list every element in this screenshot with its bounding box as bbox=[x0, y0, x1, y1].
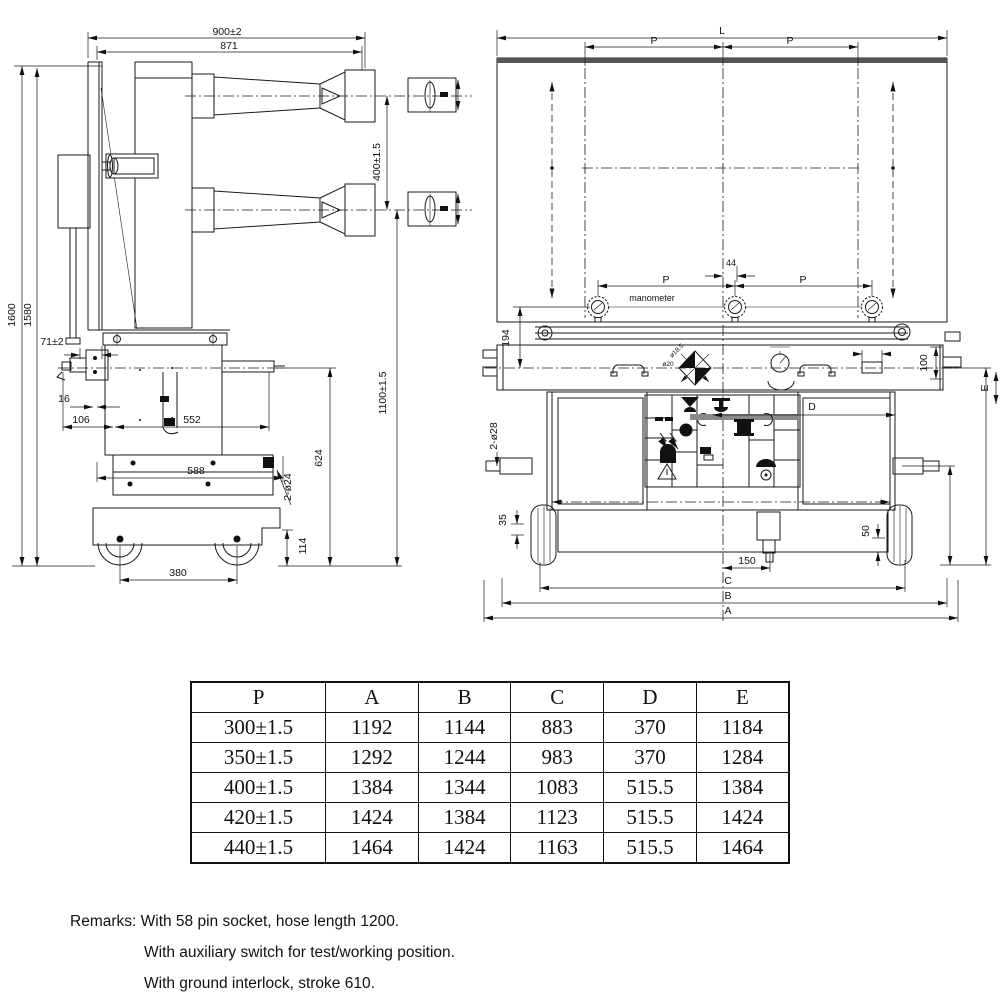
dimension-table: P A B C D E 300±1.5 1192 1144 883 370 11… bbox=[190, 681, 790, 864]
dim-1100: 1100±1.5 bbox=[377, 371, 389, 414]
table-cell: 1083 bbox=[511, 773, 604, 803]
table-cell: 1384 bbox=[326, 773, 419, 803]
panel-front-view bbox=[497, 30, 947, 368]
table-cell: 350±1.5 bbox=[191, 743, 326, 773]
table-cell: 1163 bbox=[511, 833, 604, 864]
dim-D: D bbox=[808, 401, 816, 413]
dim-44: 44 bbox=[726, 258, 736, 268]
engineering-drawing-page: { "drawing": { "side_view": { "d900": "9… bbox=[0, 0, 1000, 1000]
dim-150: 150 bbox=[738, 555, 756, 567]
table-header-row: P A B C D E bbox=[191, 682, 789, 713]
table-cell: 1384 bbox=[696, 773, 789, 803]
dim-35: 35 bbox=[497, 514, 509, 526]
table-cell: 420±1.5 bbox=[191, 803, 326, 833]
dim-380: 380 bbox=[169, 567, 187, 579]
table-cell: 1464 bbox=[326, 833, 419, 864]
dim-106: 106 bbox=[72, 414, 90, 426]
dim-P3: P bbox=[662, 274, 669, 286]
dim-71: 71±2 bbox=[40, 336, 63, 348]
table-cell: 1384 bbox=[418, 803, 511, 833]
dim-50: 50 bbox=[860, 525, 872, 537]
dim-400: 400±1.5 bbox=[371, 143, 383, 181]
dim-P1: P bbox=[650, 35, 657, 47]
table-row: 440±1.5 1464 1424 1163 515.5 1464 bbox=[191, 833, 789, 864]
table-row: 300±1.5 1192 1144 883 370 1184 bbox=[191, 713, 789, 743]
table-cell: 983 bbox=[511, 743, 604, 773]
table-cell: 515.5 bbox=[604, 833, 697, 864]
table-header-cell: E bbox=[696, 682, 789, 713]
table-cell: 1244 bbox=[418, 743, 511, 773]
control-panel bbox=[645, 395, 800, 487]
dim-o20: ø20 bbox=[662, 361, 674, 368]
dim-B: B bbox=[724, 590, 731, 602]
table-cell: 370 bbox=[604, 743, 697, 773]
dim-100: 100 bbox=[918, 354, 930, 372]
table-cell: 370 bbox=[604, 713, 697, 743]
table-cell: 1284 bbox=[696, 743, 789, 773]
terminal-detail-bottom bbox=[408, 192, 458, 226]
table-cell: 883 bbox=[511, 713, 604, 743]
table-cell: 1344 bbox=[418, 773, 511, 803]
table-cell: 440±1.5 bbox=[191, 833, 326, 864]
dim-624: 624 bbox=[313, 449, 325, 467]
side-view bbox=[12, 32, 472, 584]
breaker-technical-drawing: 900±2 871 1600 1580 71±2 400±1.5 1100±1.… bbox=[0, 0, 1000, 660]
dim-P4: P bbox=[799, 274, 806, 286]
target-symbol bbox=[679, 351, 711, 385]
remarks-block: Remarks: With 58 pin socket, hose length… bbox=[70, 906, 455, 999]
table-cell: 1192 bbox=[326, 713, 419, 743]
remarks-line-2: With auxiliary switch for test/working p… bbox=[144, 937, 455, 968]
table-cell: 1292 bbox=[326, 743, 419, 773]
table-cell: 1424 bbox=[418, 833, 511, 864]
table-cell: 1424 bbox=[696, 803, 789, 833]
dim-900: 900±2 bbox=[212, 26, 241, 38]
table-cell: 1144 bbox=[418, 713, 511, 743]
dim-194: 194 bbox=[500, 329, 512, 347]
dim-1580: 1580 bbox=[22, 303, 34, 327]
dim-1600: 1600 bbox=[6, 303, 18, 327]
table-row: 350±1.5 1292 1244 983 370 1284 bbox=[191, 743, 789, 773]
table-cell: 400±1.5 bbox=[191, 773, 326, 803]
side-view-labels: 900±2 871 1600 1580 71±2 400±1.5 1100±1.… bbox=[6, 26, 389, 579]
table-cell: 515.5 bbox=[604, 803, 697, 833]
dim-552: 552 bbox=[183, 414, 201, 426]
dim-2o24: 2-ø24 bbox=[282, 473, 294, 501]
dim-16: 16 bbox=[58, 393, 70, 405]
dim-114: 114 bbox=[297, 537, 309, 554]
terminal-detail-top bbox=[408, 78, 458, 112]
dim-P2: P bbox=[786, 35, 793, 47]
table-cell: 1464 bbox=[696, 833, 789, 864]
table-header-cell: A bbox=[326, 682, 419, 713]
dim-L: L bbox=[719, 25, 725, 37]
truck-view-labels: 100 2-ø28 35 50 150 C B A D E ø20 ø18.5 bbox=[488, 342, 991, 617]
panel-view-labels: L P P 44 P P manometer 194 bbox=[500, 25, 807, 347]
dim-A: A bbox=[724, 605, 731, 617]
dim-871: 871 bbox=[220, 40, 238, 52]
table-row: 400±1.5 1384 1344 1083 515.5 1384 bbox=[191, 773, 789, 803]
remarks-line-3: With ground interlock, stroke 610. bbox=[144, 968, 455, 999]
manometer-label: manometer bbox=[629, 293, 675, 303]
table-header-cell: B bbox=[418, 682, 511, 713]
table-header-cell: C bbox=[511, 682, 604, 713]
table-cell: 1123 bbox=[511, 803, 604, 833]
dim-588: 588 bbox=[187, 465, 205, 477]
dim-2o28: 2-ø28 bbox=[488, 422, 500, 450]
table-row: 420±1.5 1424 1384 1123 515.5 1424 bbox=[191, 803, 789, 833]
remarks-line-1: Remarks: With 58 pin socket, hose length… bbox=[70, 906, 455, 937]
table-header-cell: P bbox=[191, 682, 326, 713]
table-cell: 515.5 bbox=[604, 773, 697, 803]
dim-C: C bbox=[724, 575, 732, 587]
table-cell: 300±1.5 bbox=[191, 713, 326, 743]
table-header-cell: D bbox=[604, 682, 697, 713]
table-cell: 1424 bbox=[326, 803, 419, 833]
dim-E: E bbox=[979, 384, 991, 391]
table-cell: 1184 bbox=[696, 713, 789, 743]
